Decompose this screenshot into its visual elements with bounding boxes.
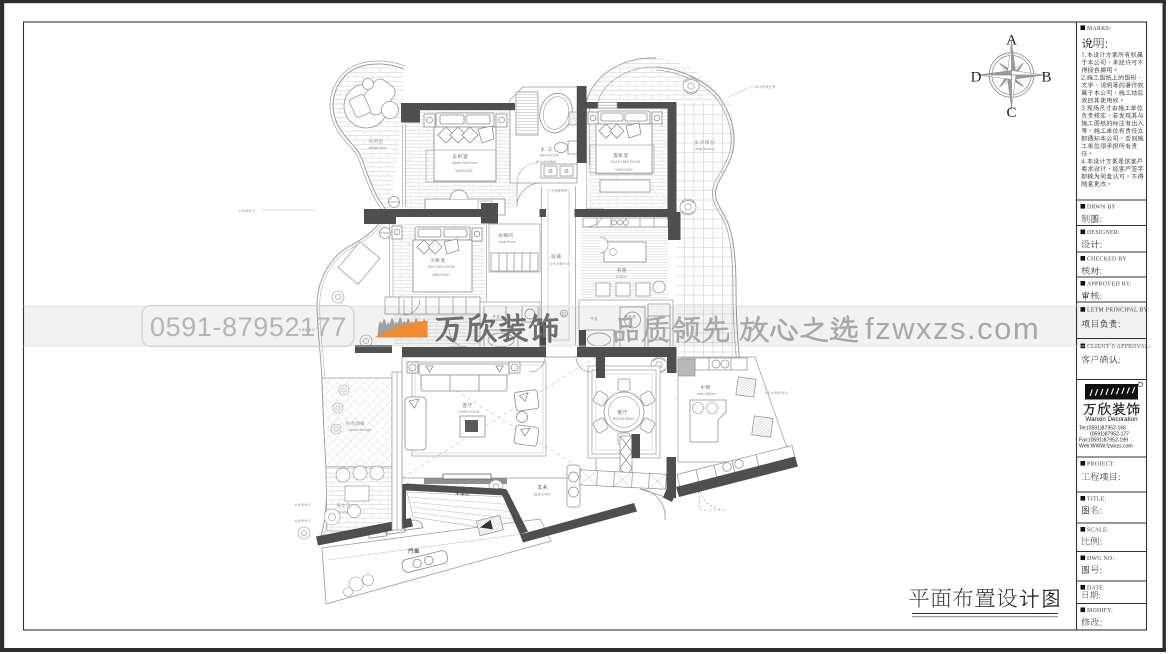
svg-text:B: B	[1041, 70, 1051, 86]
svg-text:C: C	[1006, 105, 1016, 121]
svg-text:Master Bed Room: Master Bed Room	[452, 161, 478, 165]
svg-text:DESIGNER:: DESIGNER:	[1087, 230, 1120, 236]
svg-text:PROJECT:: PROJECT:	[1087, 461, 1115, 467]
svg-text:DATE:: DATE:	[1087, 585, 1105, 591]
svg-text:Leisure Area: Leisure Area	[368, 146, 386, 150]
svg-text:SCALE:: SCALE:	[1087, 527, 1109, 533]
svg-text:MARKS:: MARKS:	[1087, 26, 1111, 32]
svg-text:BATH ROOM: BATH ROOM	[540, 154, 559, 158]
svg-text:APPROVED BY:: APPROVED BY:	[1087, 281, 1132, 287]
svg-text:RESTAURANT: RESTAURANT	[613, 417, 634, 421]
svg-text:Cloak Room: Cloak Room	[498, 240, 516, 244]
svg-text:DWG NO:: DWG NO:	[1087, 556, 1114, 562]
svg-text:CHECKED BY: CHECKED BY	[1087, 256, 1127, 262]
svg-text:fzwxzs.com: fzwxzs.com	[865, 311, 1040, 346]
svg-text:Wanxin Decoration: Wanxin Decoration	[1085, 416, 1138, 423]
svg-text:Main Kitchen: Main Kitchen	[697, 392, 716, 396]
svg-text:1800*2000: 1800*2000	[432, 273, 449, 277]
svg-text:NEXT BED ROOM: NEXT BED ROOM	[428, 265, 455, 269]
svg-text:A: A	[1006, 33, 1017, 49]
svg-text:1500*2000: 1500*2000	[615, 168, 632, 172]
svg-text:Leisure Storage: Leisure Storage	[348, 428, 371, 432]
svg-text:MODIFY:: MODIFY:	[1087, 608, 1113, 614]
svg-text:D: D	[971, 70, 982, 86]
svg-text:DRWN BY: DRWN BY	[1087, 204, 1117, 210]
svg-text:Web:WWW.fzwxzs.com: Web:WWW.fzwxzs.com	[1079, 444, 1133, 450]
svg-text:TITLE:: TITLE:	[1087, 496, 1107, 502]
svg-text:GUEST BED ROOM: GUEST BED ROOM	[611, 160, 641, 164]
svg-text:1800*2000: 1800*2000	[455, 169, 472, 173]
svg-text:STUDY: STUDY	[616, 275, 628, 279]
svg-text:0591-87952177: 0591-87952177	[150, 312, 347, 342]
svg-text:Living Balcony: Living Balcony	[694, 147, 715, 151]
svg-text:LIVING ROOM: LIVING ROOM	[458, 410, 480, 414]
svg-text:R: R	[562, 312, 566, 318]
